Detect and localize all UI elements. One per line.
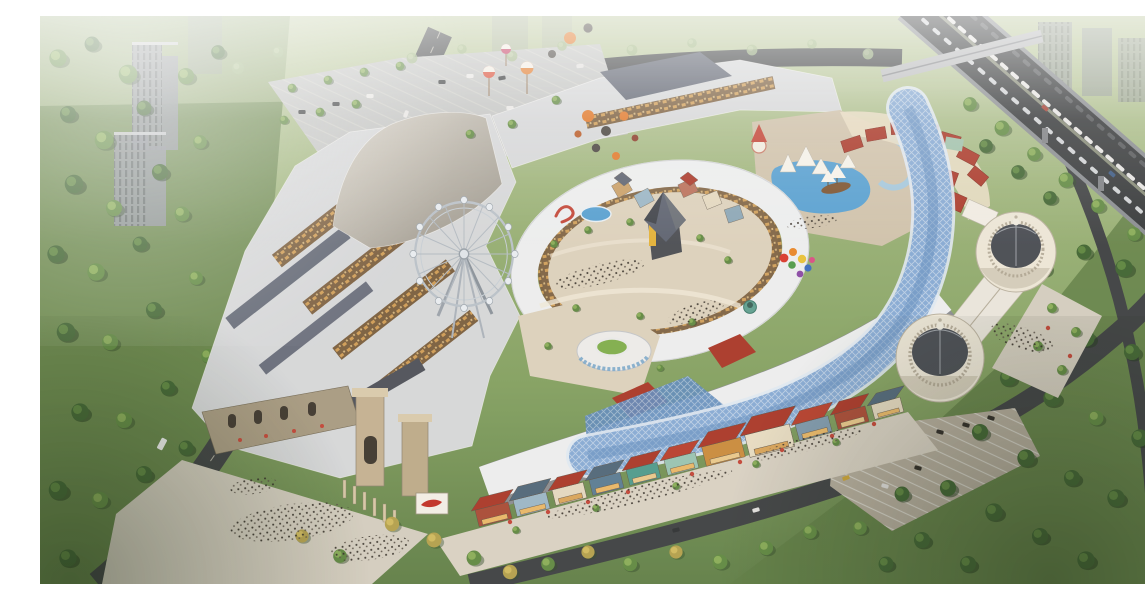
rendering-canvas <box>40 16 1145 584</box>
atmosphere <box>40 16 1145 584</box>
aerial-rendering <box>40 16 1145 584</box>
